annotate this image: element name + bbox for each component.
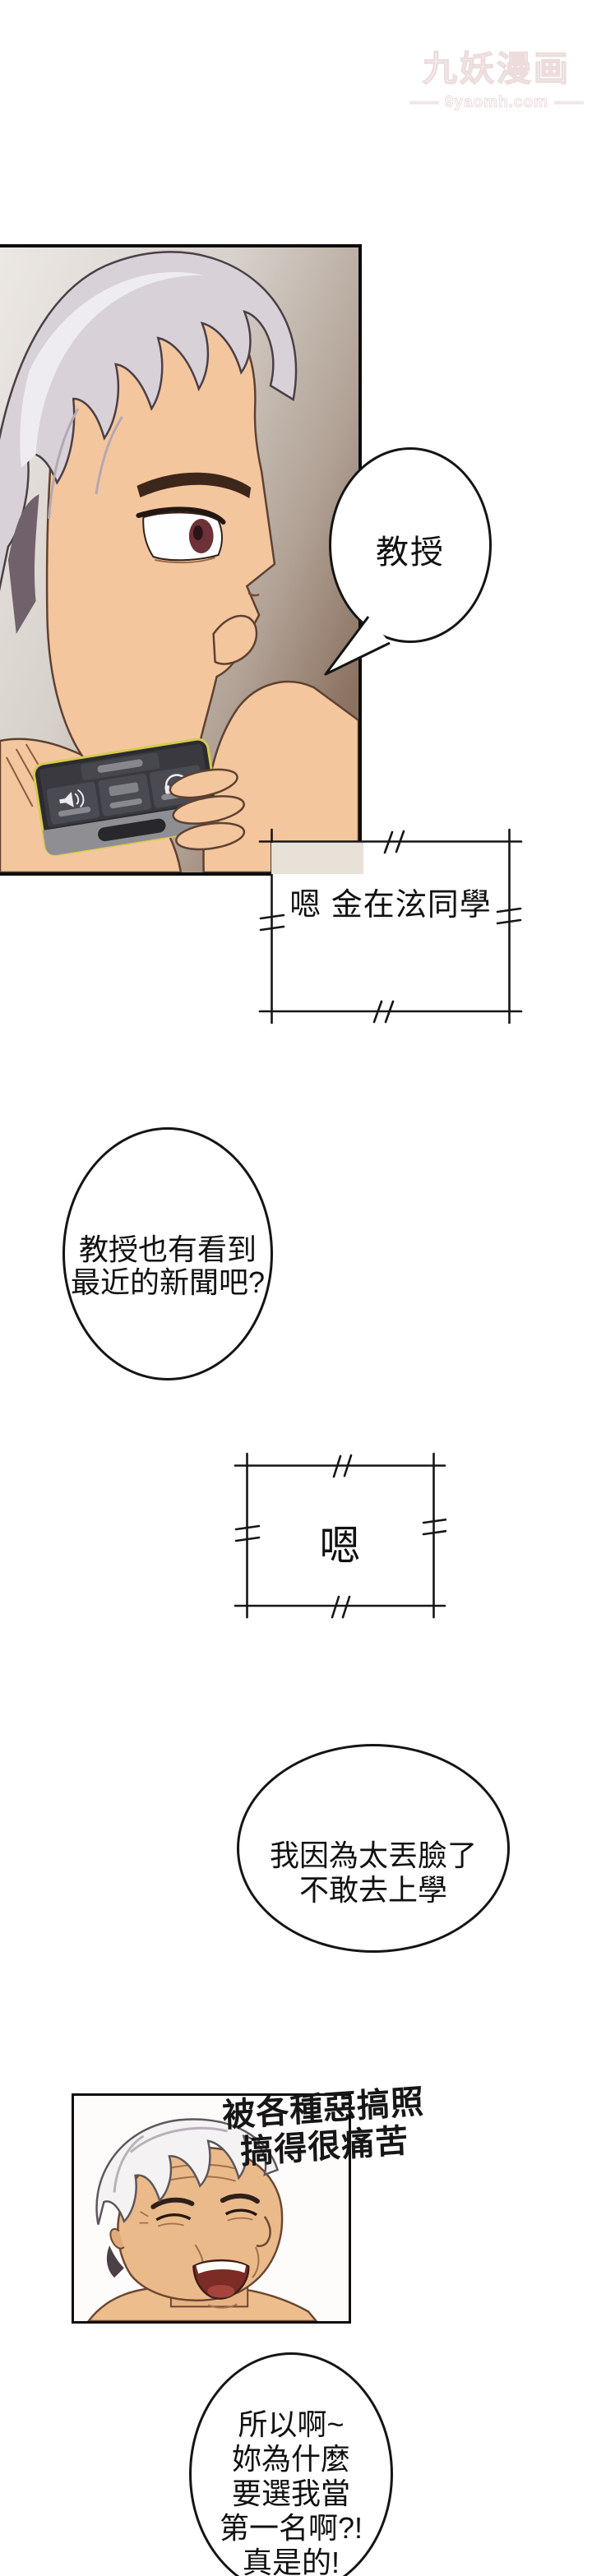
speech-bubble-news: 教授也有看到 最近的新聞吧?: [62, 1127, 273, 1380]
bubble-text: 嗯 金在泫同學: [271, 841, 510, 926]
man-on-phone-art: [0, 247, 358, 872]
speech-bubble-complaint: 所以啊~ 妳為什麼 要選我當 第一名啊?! 真是的!: [189, 2352, 393, 2576]
bubble-line: 嗯: [320, 1523, 361, 1569]
bubble-text: 所以啊~ 妳為什麼 要選我當 第一名啊?! 真是的!: [192, 2407, 391, 2576]
speech-bubble-professor: 教授: [329, 447, 492, 643]
watermark-dash: [554, 101, 584, 104]
handwritten-caption: 被各種惡搞照 搞得很痛苦: [211, 2083, 437, 2174]
tongue: [207, 2285, 234, 2298]
bubble-text: 教授也有看到 最近的新聞吧?: [65, 1233, 271, 1299]
center-button: [98, 773, 152, 816]
bubble-line: 教授也有看到: [65, 1233, 271, 1266]
bubble-line: 第一名啊?!: [192, 2511, 391, 2546]
speech-box-greeting: 嗯 金在泫同學: [271, 841, 510, 1011]
watermark-url: 9yaomh.com: [445, 94, 548, 112]
bubble-text: 嗯: [247, 1465, 433, 1572]
watermark: 九妖漫画 9yaomh.com: [409, 41, 584, 112]
speech-box-acknowledge: 嗯: [247, 1465, 433, 1606]
bubble-line: 妳為什麼: [192, 2442, 391, 2477]
bubble-line: 不敢去上學: [239, 1873, 507, 1908]
bubble-line: 要選我當: [192, 2477, 391, 2511]
bubble-line: 我因為太丟臉了: [239, 1838, 507, 1873]
bubble-line: 嗯: [289, 888, 321, 923]
watermark-title: 九妖漫画: [409, 41, 584, 91]
bubble-line: 金在泫同學: [331, 888, 492, 923]
speech-bubble-shame: 我因為太丟臉了 不敢去上學: [237, 1744, 510, 1953]
panel-man-on-phone: [0, 244, 362, 876]
pupil: [193, 525, 203, 540]
bubble-line: 最近的新聞吧?: [65, 1266, 271, 1299]
speech-bubble-tail: [322, 615, 398, 681]
bubble-line: 所以啊~: [192, 2407, 391, 2442]
bubble-text: 教授: [331, 525, 489, 573]
bubble-text: 我因為太丟臉了 不敢去上學: [239, 1838, 507, 1908]
watermark-url-row: 9yaomh.com: [409, 94, 584, 112]
bubble-line: 真是的!: [192, 2546, 391, 2576]
watermark-dash: [409, 101, 439, 104]
comic-page: 九妖漫画 9yaomh.com: [0, 0, 592, 2576]
